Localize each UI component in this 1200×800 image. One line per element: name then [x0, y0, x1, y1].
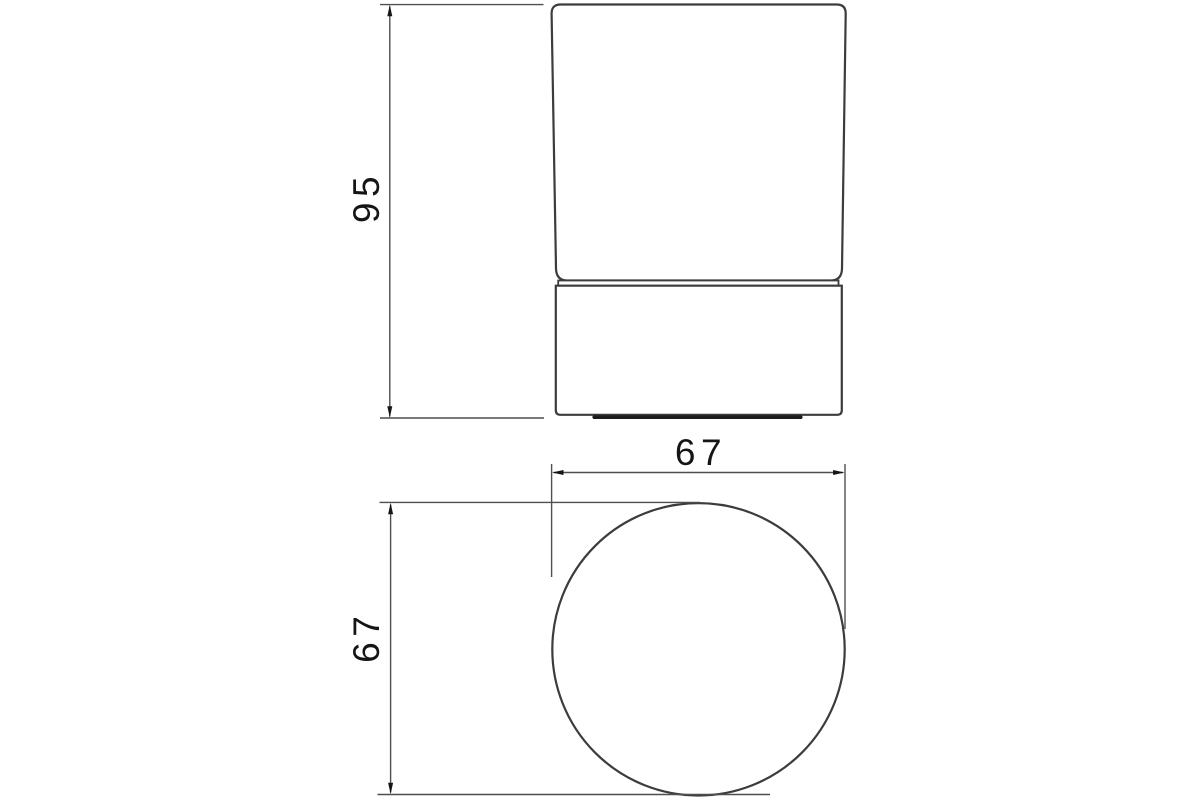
- svg-text:67: 67: [346, 611, 387, 663]
- svg-text:67: 67: [675, 432, 727, 473]
- svg-text:95: 95: [346, 171, 387, 223]
